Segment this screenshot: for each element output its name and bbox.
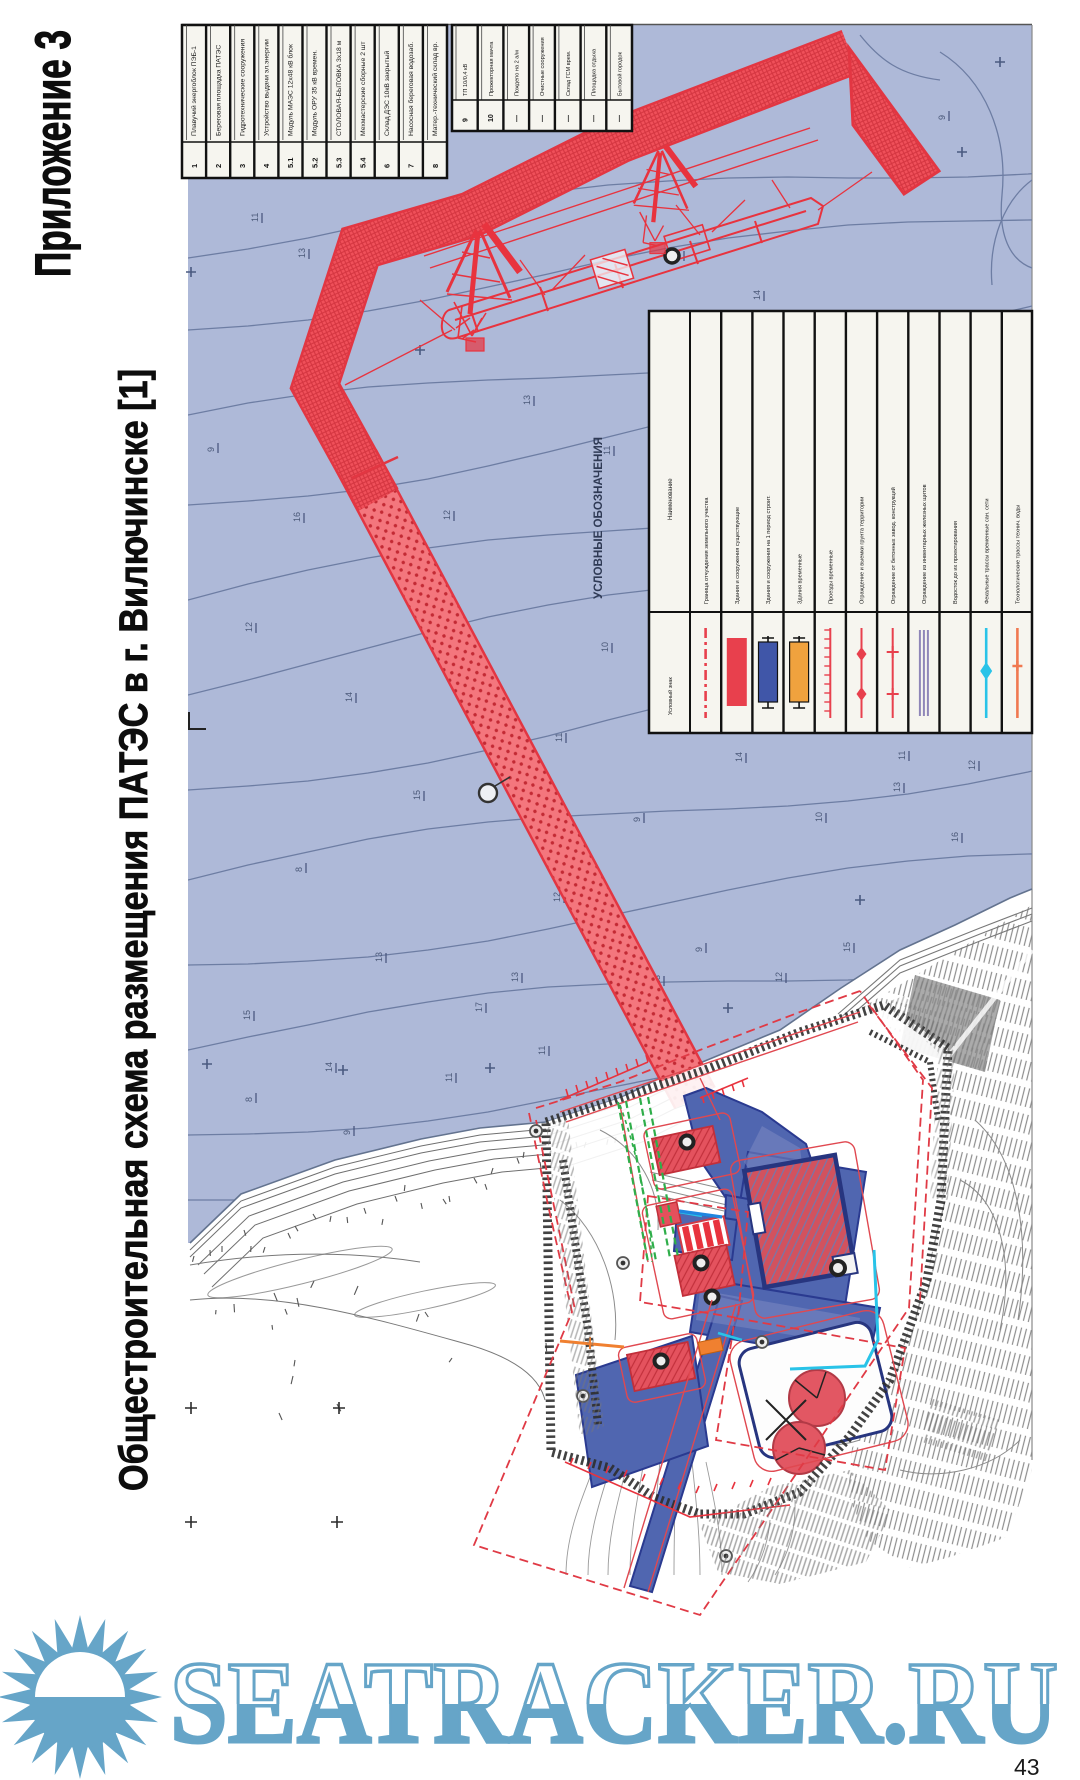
svg-text:Склад ГСМ врем.: Склад ГСМ врем. (566, 50, 572, 96)
svg-text:Общестроительная схема размеще: Общестроительная схема размещения ПАТЭС … (112, 369, 156, 1491)
svg-text:Здания временные: Здания временные (797, 554, 803, 604)
svg-text:9: 9 (937, 115, 947, 120)
svg-text:8: 8 (244, 1097, 254, 1102)
svg-text:Технологические трассы технич.: Технологические трассы технич. воды (1016, 505, 1022, 604)
svg-text:Здания и сооружения существующ: Здания и сооружения существующие (735, 507, 741, 604)
svg-text:—: — (591, 115, 598, 122)
svg-text:9: 9 (632, 817, 642, 822)
svg-text:Гидротехнические сооружения: Гидротехнические сооружения (239, 39, 246, 136)
svg-text:Здания и сооружения на 1 перио: Здания и сооружения на 1 период строит. (766, 495, 772, 604)
svg-text:15: 15 (412, 790, 422, 800)
svg-text:Матер.-технический склад вр.: Матер.-технический склад вр. (431, 42, 439, 136)
svg-text:16: 16 (292, 512, 302, 522)
svg-text:Условный знак: Условный знак (667, 677, 674, 715)
svg-text:Модуль МАЭС 12х48 кВ блок: Модуль МАЭС 12х48 кВ блок (287, 44, 295, 136)
svg-text:11: 11 (250, 213, 260, 222)
svg-text:Ограждение и выемки грунта тер: Ограждение и выемки грунта территории (860, 497, 866, 604)
svg-text:11: 11 (537, 1046, 547, 1055)
svg-text:13: 13 (522, 395, 532, 405)
svg-text:Фекальные трассы временные сан: Фекальные трассы временные сан. сети (984, 499, 990, 604)
svg-text:10: 10 (600, 642, 610, 652)
svg-text:9: 9 (463, 118, 470, 122)
svg-text:Площадка отдыха: Площадка отдыха (592, 48, 598, 96)
svg-text:Береговая площадка ПАТЭС: Береговая площадка ПАТЭС (215, 45, 222, 136)
svg-text:Модуль ОРУ 35 кВ времен.: Модуль ОРУ 35 кВ времен. (312, 50, 319, 136)
svg-text:—: — (514, 115, 521, 122)
svg-text:Мехмастерские сборные 2 шт: Мехмастерские сборные 2 шт (359, 42, 367, 136)
svg-text:14: 14 (344, 692, 354, 702)
svg-text:9: 9 (694, 947, 704, 952)
svg-text:15: 15 (242, 1010, 252, 1020)
svg-text:9: 9 (342, 1130, 352, 1135)
svg-text:5.4: 5.4 (359, 157, 368, 168)
svg-text:Водосток до их проектирования: Водосток до их проектирования (953, 521, 959, 604)
svg-text:Проезды временные: Проезды временные (829, 550, 835, 604)
svg-text:12: 12 (244, 622, 254, 632)
svg-text:Прожекторная мачта: Прожекторная мачта (489, 41, 495, 96)
svg-text:16: 16 (950, 832, 960, 842)
svg-text:43: 43 (1014, 1754, 1040, 1780)
svg-text:11: 11 (554, 733, 564, 742)
svg-text:12: 12 (442, 510, 452, 520)
svg-text:—: — (540, 115, 547, 122)
svg-text:10: 10 (814, 812, 824, 822)
svg-text:11: 11 (897, 751, 907, 760)
svg-text:Пождепо на 2 а/м: Пождепо на 2 а/м (515, 50, 521, 96)
svg-text:3: 3 (238, 164, 247, 168)
svg-text:1: 1 (190, 164, 199, 168)
svg-text:13: 13 (510, 972, 520, 982)
svg-text:5.3: 5.3 (334, 158, 343, 168)
svg-text:9: 9 (206, 447, 216, 452)
svg-text:5.2: 5.2 (310, 158, 319, 168)
svg-text:8: 8 (431, 164, 440, 168)
svg-text:13: 13 (297, 248, 307, 258)
svg-text:14: 14 (752, 290, 762, 300)
svg-text:13: 13 (892, 782, 902, 792)
svg-text:12: 12 (967, 760, 977, 770)
svg-text:Ограждение от бетонных завод.: Ограждение от бетонных завод. конструкци… (890, 487, 897, 604)
svg-text:5.1: 5.1 (286, 158, 295, 168)
svg-text:10: 10 (488, 114, 495, 122)
svg-text:Приложение 3: Приложение 3 (25, 30, 81, 277)
svg-text:—: — (565, 115, 572, 122)
svg-text:Устройство выдачи эл.энергии: Устройство выдачи эл.энергии (263, 39, 271, 136)
svg-text:17: 17 (474, 1002, 484, 1012)
svg-text:6: 6 (383, 164, 392, 168)
svg-text:12: 12 (774, 972, 784, 982)
svg-text:Плавучий энергоблок ПЭБ-1: Плавучий энергоблок ПЭБ-1 (190, 46, 198, 136)
svg-text:13: 13 (374, 952, 384, 962)
svg-text:Ограждение из инвентарных желе: Ограждение из инвентарных железных щитов (922, 484, 928, 604)
svg-text:2: 2 (214, 164, 223, 168)
svg-text:Насосная береговая водозаб.: Насосная береговая водозаб. (407, 42, 415, 136)
svg-text:Очистные сооружения: Очистные сооружения (540, 37, 546, 96)
svg-text:УСЛОВНЫЕ ОБОЗНАЧЕНИЯ: УСЛОВНЫЕ ОБОЗНАЧЕНИЯ (593, 437, 605, 599)
svg-text:7: 7 (407, 164, 416, 168)
svg-text:Бытовой городок: Бытовой городок (616, 51, 623, 96)
svg-text:15: 15 (842, 942, 852, 952)
svg-text:СТОЛОВАЯ-БЫТОВКА 3х18 м: СТОЛОВАЯ-БЫТОВКА 3х18 м (336, 40, 343, 136)
svg-text:14: 14 (324, 1062, 334, 1072)
svg-text:—: — (617, 115, 624, 122)
svg-text:11: 11 (444, 1073, 454, 1082)
svg-text:Склад ДЭС 10кВ закрытый: Склад ДЭС 10кВ закрытый (383, 51, 391, 136)
svg-text:ТП 10/0,4 кВ: ТП 10/0,4 кВ (463, 63, 469, 96)
svg-text:8: 8 (294, 867, 304, 872)
svg-text:14: 14 (734, 752, 744, 762)
svg-text:Граница отчуждения земельного: Граница отчуждения земельного участка (704, 497, 710, 604)
svg-text:Наименование: Наименование (668, 478, 674, 520)
